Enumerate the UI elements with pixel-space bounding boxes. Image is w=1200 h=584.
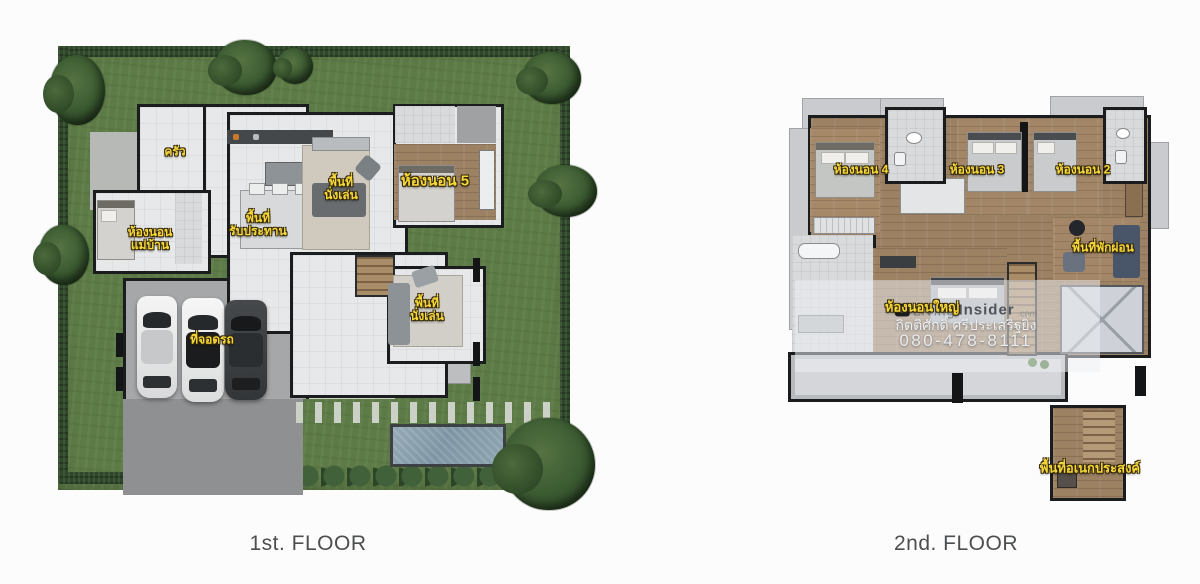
room-label-parking: ที่จอดรถ [190, 334, 234, 347]
sitting-sofa [388, 283, 410, 345]
column-marker [473, 342, 480, 366]
sink [906, 132, 922, 144]
floorplan-sheet: ครัว พื้นที่ นั่งเล่น ห้องนอน 5 พื้นที่ … [0, 0, 1200, 584]
second-floor-plan: in Living Insider .com กิตติศักดิ์ ศรีปร… [780, 90, 1180, 510]
tree [215, 40, 277, 95]
column-marker [952, 373, 963, 403]
column-marker [116, 333, 123, 357]
bedroom5-bathroom [395, 106, 455, 143]
label-line: รับประทาน [229, 225, 286, 238]
master-tv-cabinet [880, 256, 916, 268]
counter-item [233, 134, 239, 140]
dining-chair [249, 183, 265, 195]
tree [50, 55, 105, 125]
room-label-living-top: พื้นที่ นั่งเล่น [324, 176, 358, 202]
room-label-bedroom3: ห้องนอน 3 [950, 164, 1005, 177]
toilet [894, 152, 906, 166]
dining-chair [272, 183, 288, 195]
tree [535, 165, 597, 217]
bedroom5-closet [457, 106, 496, 143]
bathtub [798, 243, 840, 259]
watermark-phone: 080-478-8111 [899, 331, 1032, 351]
car-dark [225, 300, 267, 400]
bathroom-shared [885, 107, 946, 184]
room-label-master-bedroom: ห้องนอนใหญ่ [885, 301, 959, 314]
label-line: แม่บ้าน [128, 239, 173, 252]
hedge-top [58, 46, 570, 57]
driveway [123, 396, 303, 495]
bedroom4-wardrobe [813, 217, 875, 234]
car-white [137, 296, 177, 398]
multipurpose-stairs [1083, 410, 1115, 462]
multipurpose-room [1050, 405, 1126, 501]
label-line: นั่งเล่น [324, 189, 358, 202]
room-label-kitchen: ครัว [164, 146, 185, 159]
relax-armchair [1063, 252, 1085, 272]
toilet [1115, 150, 1127, 164]
column-marker [116, 367, 123, 391]
sink [1116, 128, 1130, 139]
bedroom5-wardrobe [479, 150, 495, 210]
tree [523, 52, 581, 104]
column-marker [473, 258, 480, 282]
hedge-right [560, 46, 570, 466]
room-label-bedroom5: ห้องนอน 5 [401, 175, 469, 188]
column-marker [1135, 366, 1146, 396]
first-floor-caption: 1st. FLOOR [249, 532, 366, 556]
second-floor-caption: 2nd. FLOOR [894, 532, 1018, 556]
room-label-bedroom4: ห้องนอน 4 [834, 164, 889, 177]
stepping-stones [296, 402, 558, 423]
room-label-multipurpose: พื้นที่อเนกประสงค์ [1040, 462, 1140, 475]
tree [277, 48, 313, 84]
hedge-bottom-left [58, 472, 130, 484]
tree [39, 225, 89, 285]
label-line: นั่งเล่น [410, 310, 444, 323]
room-label-dining: พื้นที่ รับประทาน [229, 212, 286, 238]
room-label-maid: ห้องนอน แม่บ้าน [128, 226, 173, 252]
tv-console [312, 137, 370, 151]
room-label-living-bottom: พื้นที่ นั่งเล่น [410, 297, 444, 323]
room-label-bedroom2: ห้องนอน 2 [1056, 164, 1111, 177]
speaker [1069, 220, 1085, 236]
counter-sink [253, 134, 259, 140]
column-marker [473, 377, 480, 401]
maid-bathroom [175, 193, 202, 264]
first-floor-plan: ครัว พื้นที่ นั่งเล่น ห้องนอน 5 พื้นที่ … [55, 40, 575, 495]
room-label-relax-area: พื้นที่พักผ่อน [1072, 242, 1134, 255]
tree [503, 418, 595, 510]
bushes-row [295, 465, 523, 487]
swimming-pool [390, 424, 506, 467]
car-silver [182, 298, 224, 402]
